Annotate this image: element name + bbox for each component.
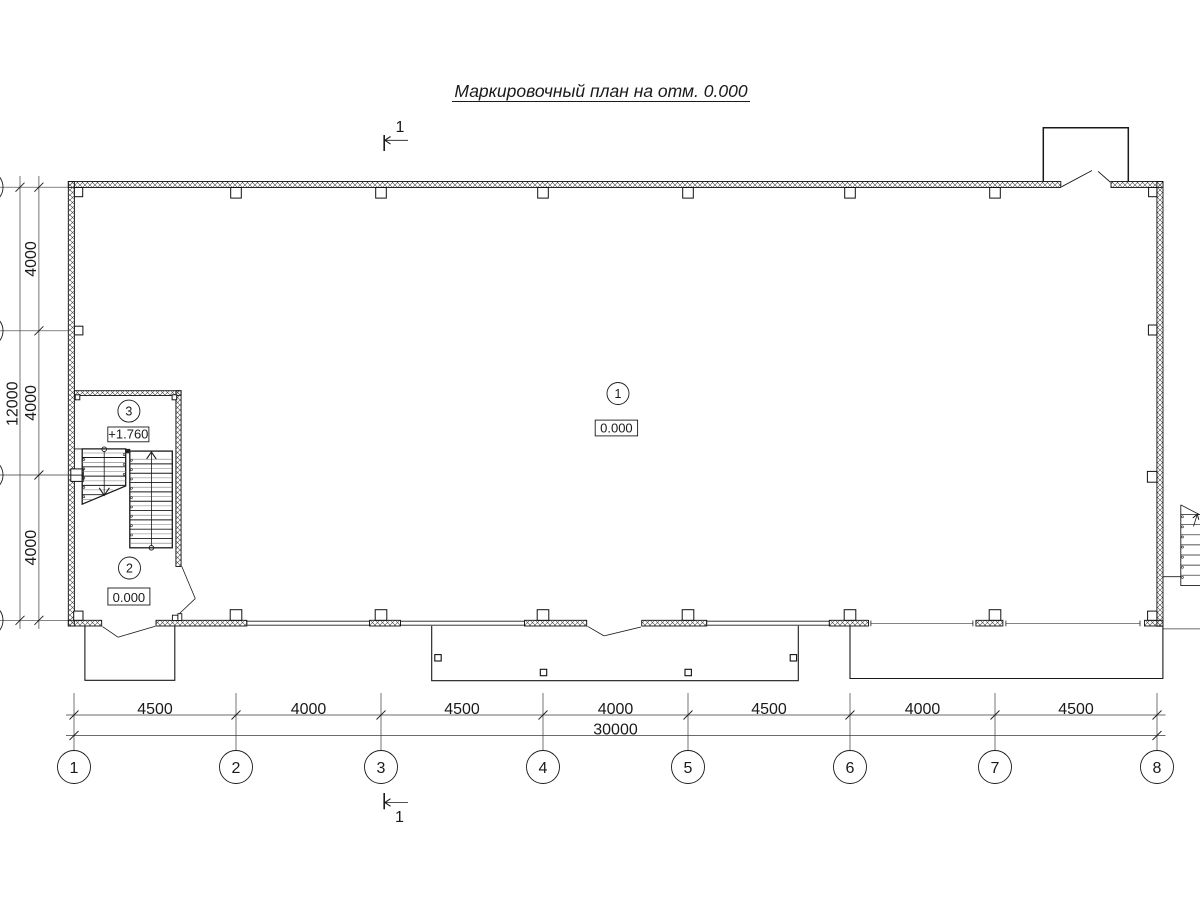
svg-text:3: 3 (377, 760, 386, 777)
svg-text:4500: 4500 (444, 701, 480, 718)
svg-text:4000: 4000 (905, 701, 941, 718)
svg-text:3: 3 (125, 405, 132, 419)
svg-text:7: 7 (991, 760, 1000, 777)
svg-text:+1.760: +1.760 (108, 427, 148, 442)
svg-text:30000: 30000 (593, 722, 638, 739)
svg-text:4: 4 (539, 760, 548, 777)
svg-text:Маркировочный план на отм. 0.0: Маркировочный план на отм. 0.000 (454, 81, 747, 101)
svg-text:1: 1 (395, 809, 404, 826)
svg-text:12000: 12000 (5, 381, 22, 426)
svg-text:4000: 4000 (23, 385, 40, 421)
svg-text:1: 1 (396, 119, 405, 136)
svg-text:8: 8 (1153, 760, 1162, 777)
svg-text:0.000: 0.000 (600, 421, 633, 436)
svg-text:5: 5 (684, 760, 693, 777)
svg-text:4500: 4500 (751, 701, 787, 718)
svg-text:0.000: 0.000 (113, 590, 146, 605)
svg-text:6: 6 (846, 760, 855, 777)
svg-text:4000: 4000 (598, 701, 634, 718)
svg-text:4000: 4000 (23, 530, 40, 566)
svg-text:4500: 4500 (1058, 701, 1094, 718)
svg-text:4000: 4000 (23, 241, 40, 277)
svg-text:4500: 4500 (137, 701, 173, 718)
svg-text:4000: 4000 (291, 701, 327, 718)
svg-text:1: 1 (70, 760, 79, 777)
svg-text:2: 2 (126, 562, 133, 576)
svg-text:1: 1 (615, 387, 622, 401)
svg-text:2: 2 (232, 760, 241, 777)
